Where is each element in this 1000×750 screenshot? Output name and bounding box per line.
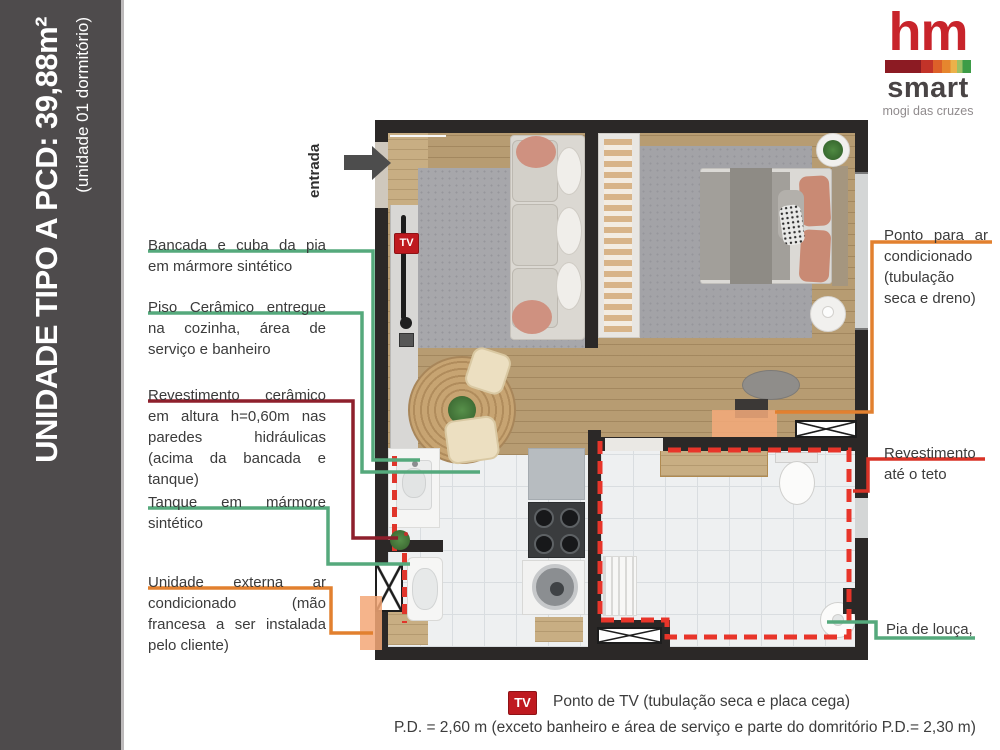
logo-smart-text: smart xyxy=(872,73,984,104)
sofa-pillow-bottom xyxy=(512,300,552,334)
laundry-tank-basin xyxy=(412,568,438,610)
dining-chair-2 xyxy=(443,415,501,466)
sofa-back-cushion-2 xyxy=(556,207,582,255)
logo-hm-text: hm xyxy=(872,4,984,60)
toilet-bowl xyxy=(779,461,815,505)
bathroom-counter xyxy=(660,447,768,477)
stove-burner-3 xyxy=(534,534,554,554)
bedroom-plant xyxy=(823,140,843,160)
door-swing-line xyxy=(390,135,446,137)
bathroom-mat-hatch xyxy=(597,627,662,644)
wall-living-bedroom xyxy=(585,133,598,348)
window-bathroom xyxy=(855,498,868,538)
wardrobe-clothes xyxy=(604,139,632,332)
annotation-bancada: Bancada e cuba da pia em mármore sintéti… xyxy=(148,235,326,277)
annotation-pia-louca: Pia de louça, xyxy=(886,619,996,640)
annotation-tanque: Tanque em mármore sintético xyxy=(148,492,326,534)
bathroom-door xyxy=(605,438,663,451)
annotation-unidade-externa: Unidade externa ar condicionado (mão fra… xyxy=(148,572,326,656)
bed-runner xyxy=(730,168,772,284)
window-bedroom xyxy=(855,172,868,330)
tv-badge-plan: TV xyxy=(394,233,419,254)
wall-bathroom-corner xyxy=(843,588,855,614)
annotation-revestimento-teto: Revestimento até o teto xyxy=(884,443,988,485)
page-title: UNIDADE TIPO A PCD: 39,88m² xyxy=(24,17,70,487)
page-subtitle: (unidade 01 dormitório) xyxy=(70,17,96,487)
legend-tv-badge: TV xyxy=(508,691,537,715)
kitchen-faucet xyxy=(412,461,418,467)
annotation-ponto-ar: Ponto para ar condicionado (tubulação se… xyxy=(884,225,988,309)
sofa-back-cushion-3 xyxy=(556,262,582,310)
nightstand-decor xyxy=(822,306,834,318)
wall-service-stub xyxy=(377,540,443,552)
sofa-pillow-top xyxy=(516,136,556,168)
entrance-label: entrada xyxy=(306,144,323,198)
bed-headboard xyxy=(832,166,848,286)
bathroom-sink-drain xyxy=(832,614,844,626)
annotation-piso: Piso Cerâmico entregue na cozinha, área … xyxy=(148,297,326,360)
wall-left-upper xyxy=(375,120,388,142)
vent-hatch xyxy=(795,420,857,438)
stove-burner-4 xyxy=(560,534,580,554)
legend-pd-note: P.D. = 2,60 m (exceto banheiro e área de… xyxy=(394,719,976,737)
page: UNIDADE TIPO A PCD: 39,88m² (unidade 01 … xyxy=(0,0,1000,750)
washer-shelf xyxy=(535,617,583,642)
wall-bottom xyxy=(375,647,868,660)
ac-point-highlight xyxy=(712,410,777,437)
counter-plant-flower xyxy=(404,532,408,536)
entrance-arrow-head xyxy=(372,146,391,180)
stove-counter xyxy=(528,448,585,500)
tv-screen xyxy=(401,215,406,320)
sofa-back-cushion-1 xyxy=(556,147,582,195)
hallway-pouf xyxy=(742,370,800,400)
stove-burner-1 xyxy=(534,508,554,528)
bathroom-bench xyxy=(603,556,637,616)
ac-external-highlight xyxy=(360,596,382,650)
washer-drum-center xyxy=(550,582,564,596)
logo-tagline: mogi das cruzes xyxy=(872,104,984,118)
legend-tv-note: Ponto de TV (tubulação seca e placa cega… xyxy=(553,693,850,711)
entrance-arrow-shaft xyxy=(344,155,372,170)
floor-bathroom-tiles xyxy=(601,450,855,647)
ceramic-band-dashes-2 xyxy=(402,553,407,623)
sofa-seat-2 xyxy=(512,204,558,266)
stove-burner-2 xyxy=(560,508,580,528)
sidebar-title-block: UNIDADE TIPO A PCD: 39,88m² (unidade 01 … xyxy=(24,17,96,487)
annotation-revestimento-ceramico: Revestimento cerâmico em altura h=0,60m … xyxy=(148,385,326,490)
kitchen-sink-basin xyxy=(402,468,426,498)
wall-kitchen-bathroom xyxy=(588,430,601,647)
wall-top xyxy=(375,120,868,133)
tv-speaker xyxy=(400,317,412,329)
tv-console xyxy=(399,333,414,347)
logo: hm smart mogi das cruzes xyxy=(872,4,984,118)
